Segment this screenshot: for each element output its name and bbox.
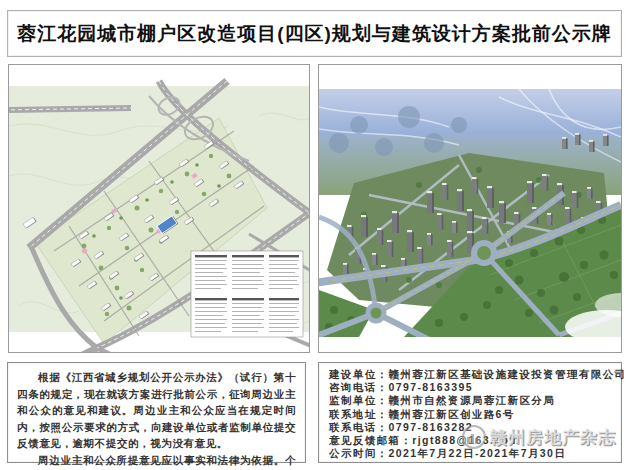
info-value: rjgt888@163.com [412,434,520,446]
info-label: 联系电话： [329,421,389,433]
info-line-contact-address: 联系地址：赣州蓉江新区创业路6号 [329,408,613,421]
notice-title-box: 蓉江花园城市棚户区改造项目(四区)规划与建筑设计方案批前公示牌 [7,10,622,57]
info-label: 公示时间： [329,447,389,459]
info-value: 2021年7月22日-2021年7月30日 [389,447,567,459]
info-line-supervising-unit: 监制单位：赣州市自然资源局蓉江新区分局 [329,394,613,407]
info-value: 赣州蓉江新区基础设施建设投资管理有限公司 [389,368,627,380]
info-line-construction-unit: 建设单位：赣州蓉江新区基础设施建设投资管理有限公司 [329,368,613,381]
site-plan-panel [8,64,310,353]
site-plan-image [9,65,309,352]
notice-paragraph-2: 周边业主和公众所提意见应以事实和法律为依据。个人提交反馈意见的应签署真实姓名、住… [17,452,296,470]
aerial-rendering-panel [318,64,622,353]
info-line-feedback-email: 意见反馈邮箱：rjgt888@163.com [329,434,613,447]
info-value: 赣州市自然资源局蓉江新区分局 [389,394,556,406]
info-label: 联系地址： [329,408,389,420]
info-label: 建设单位： [329,368,389,380]
page-title: 蓉江花园城市棚户区改造项目(四区)规划与建筑设计方案批前公示牌 [17,21,612,47]
info-line-contact-phone: 联系电话：0797-8163282 [329,421,613,434]
info-label: 意见反馈邮箱： [329,434,412,446]
info-label: 监制单位： [329,394,389,406]
info-label: 咨询电话： [329,381,389,393]
project-info-box: 建设单位：赣州蓉江新区基础设施建设投资管理有限公司 咨询电话：0797-8163… [318,362,622,463]
info-value: 0797-8163395 [389,381,474,393]
notice-text-box: 根据《江西省城乡规划公开公示办法》（试行）第十四条的规定，现在就该方案进行批前公… [7,362,306,463]
notice-paragraph-1: 根据《江西省城乡规划公开公示办法》（试行）第十四条的规定，现在就该方案进行批前公… [17,369,296,452]
info-value: 赣州蓉江新区创业路6号 [389,408,515,420]
info-line-publicity-period: 公示时间：2021年7月22日-2021年7月30日 [329,447,613,460]
aerial-rendering-image [319,65,621,352]
info-line-consult-phone: 咨询电话：0797-8163395 [329,381,613,394]
info-value: 0797-8163282 [389,421,474,433]
